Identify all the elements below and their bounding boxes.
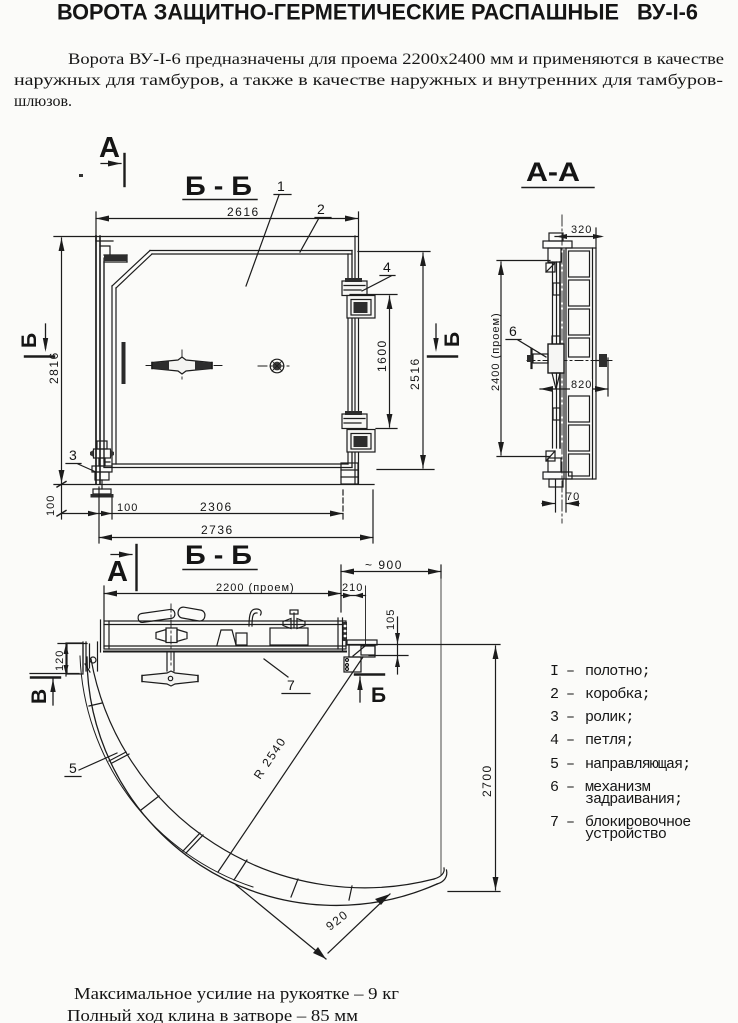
svg-text:1600: 1600	[375, 339, 389, 372]
svg-text:100: 100	[117, 502, 138, 514]
svg-text:5: 5	[69, 760, 77, 776]
svg-text:3: 3	[550, 709, 559, 726]
svg-text:120: 120	[54, 650, 66, 671]
svg-text:Ворота ВУ-I-6 предназначены дл: Ворота ВУ-I-6 предназначены для проема 2…	[68, 51, 724, 68]
svg-text:70: 70	[566, 491, 580, 503]
svg-text:А-А: А-А	[526, 157, 580, 187]
svg-text:100: 100	[45, 495, 57, 516]
svg-text:–: –	[566, 663, 574, 680]
svg-text:2306: 2306	[200, 500, 233, 514]
svg-text:Максимальное усилие на рукоятк: Максимальное усилие на рукоятке – 9 кг	[74, 984, 399, 1003]
svg-text:–: –	[566, 756, 574, 773]
svg-text:Б - Б: Б - Б	[185, 171, 252, 201]
svg-text:задраивания;: задраивания;	[585, 791, 682, 808]
svg-text:–: –	[566, 686, 574, 703]
svg-text:320: 320	[571, 224, 592, 236]
svg-text:ВОРОТА ЗАЩИТНО-ГЕРМЕТИЧЕСКИЕ Р: ВОРОТА ЗАЩИТНО-ГЕРМЕТИЧЕСКИЕ РАСПАШНЫЕ В…	[57, 0, 698, 25]
svg-text:ролик;: ролик;	[585, 709, 634, 726]
svg-text:Б: Б	[18, 333, 41, 348]
svg-text:–: –	[566, 709, 574, 726]
svg-text:2: 2	[550, 686, 558, 703]
svg-text:4: 4	[383, 259, 391, 275]
svg-text:полотно;: полотно;	[585, 663, 650, 680]
svg-text:наружных для тамбуров, а также: наружных для тамбуров, а также в качеств…	[14, 72, 723, 89]
svg-text:5: 5	[550, 756, 559, 773]
svg-text:3: 3	[69, 447, 77, 463]
svg-text:1: 1	[277, 178, 285, 194]
svg-text:6: 6	[509, 323, 517, 339]
svg-text:коробка;: коробка;	[585, 686, 650, 703]
svg-text:В: В	[28, 689, 51, 704]
svg-text:–: –	[566, 732, 574, 749]
svg-text:7: 7	[287, 677, 295, 693]
svg-text:2616: 2616	[227, 205, 260, 219]
svg-text:~ 900: ~ 900	[365, 558, 403, 572]
svg-text:Б: Б	[441, 332, 464, 347]
svg-text:I: I	[550, 663, 558, 680]
svg-text:2700: 2700	[480, 764, 494, 797]
svg-text:–: –	[566, 814, 574, 831]
svg-text:2: 2	[317, 201, 325, 217]
svg-text:–: –	[566, 779, 574, 796]
svg-text:направляющая;: направляющая;	[585, 756, 690, 773]
svg-text:2736: 2736	[201, 523, 234, 537]
svg-text:А: А	[99, 132, 120, 164]
svg-text:Б - Б: Б - Б	[185, 540, 252, 570]
svg-text:920: 920	[323, 907, 351, 933]
svg-text:6: 6	[550, 779, 559, 796]
svg-text:105: 105	[385, 609, 397, 630]
svg-text:петля;: петля;	[585, 732, 634, 749]
svg-text:А: А	[107, 556, 128, 588]
svg-text:Б: Б	[371, 684, 386, 707]
svg-text:820: 820	[571, 379, 592, 391]
svg-text:шлюзов.: шлюзов.	[14, 93, 72, 110]
svg-text:устройство: устройство	[585, 826, 667, 843]
svg-text:7: 7	[550, 814, 558, 831]
svg-text:2400 (проем): 2400 (проем)	[490, 312, 502, 391]
svg-text:4: 4	[550, 732, 559, 749]
svg-text:Полный ход клина в затворе – 8: Полный ход клина в затворе – 85 мм	[67, 1006, 358, 1023]
svg-text:210: 210	[342, 582, 363, 594]
svg-text:2516: 2516	[408, 357, 422, 390]
svg-text:2200 (проем): 2200 (проем)	[216, 582, 295, 594]
